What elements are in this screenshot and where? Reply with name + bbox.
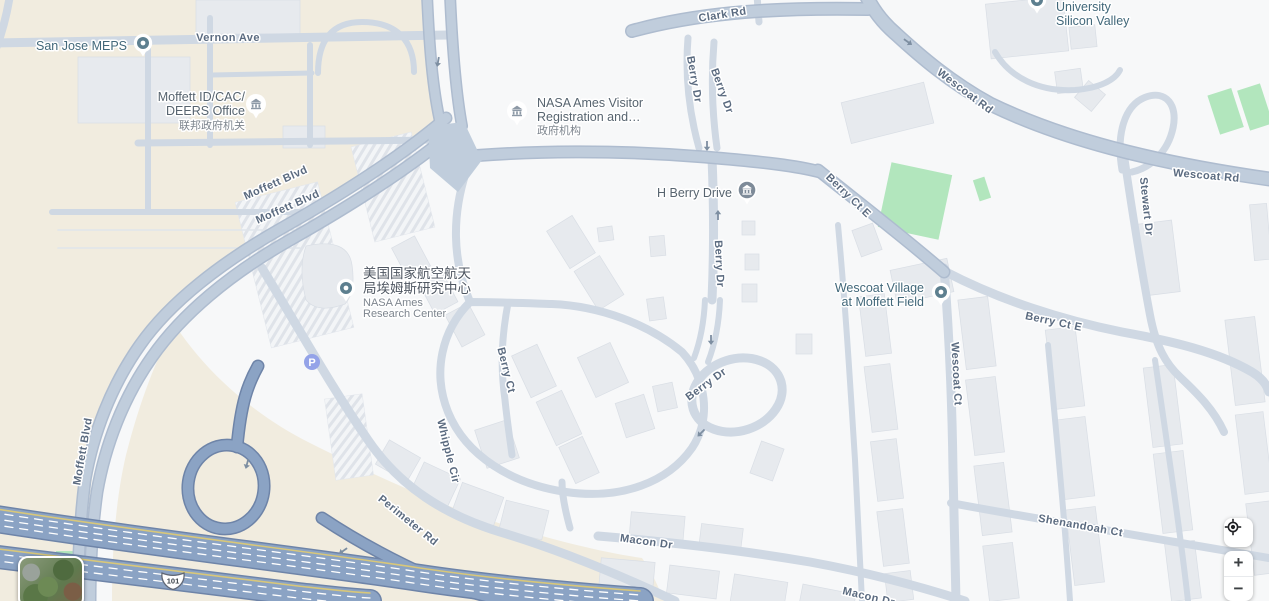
map-canvas[interactable]: Vernon Ave Moffett Blvd Moffett Blvd Mof… xyxy=(0,0,1269,601)
road-label-berry-dr-3: Berry Dr xyxy=(712,240,726,288)
poi-wescoat-village-line1: Wescoat Village xyxy=(835,281,924,295)
poi-nasa-ames-line1: 美国国家航空航天 xyxy=(363,265,471,281)
road-label-vernon-ave: Vernon Ave xyxy=(196,32,260,44)
poi-moffett-id-line2: DEERS Office xyxy=(166,104,245,118)
poi-university-line2: Silicon Valley xyxy=(1056,14,1130,28)
poi-wescoat-village-line2: at Moffett Field xyxy=(842,295,924,309)
poi-san-jose-meps-label: San Jose MEPS xyxy=(36,39,127,53)
zoom-out-button[interactable]: − xyxy=(1224,576,1253,601)
poi-nasa-visitor-line3: 政府机构 xyxy=(537,123,581,137)
parking-icon-label: P xyxy=(308,357,315,369)
my-location-button[interactable] xyxy=(1224,518,1253,547)
poi-moffett-id-line3: 联邦政府机关 xyxy=(179,118,245,132)
poi-nasa-visitor-line2: Registration and… xyxy=(537,110,641,124)
zoom-in-button[interactable]: + xyxy=(1224,551,1253,576)
highway-101-shield-label: 101 xyxy=(167,577,180,586)
map-app: Vernon Ave Moffett Blvd Moffett Blvd Mof… xyxy=(0,0,1269,601)
poi-nasa-visitor-line1: NASA Ames Visitor xyxy=(537,96,643,110)
parking-icon[interactable]: P xyxy=(304,354,320,370)
poi-moffett-id-line1: Moffett ID/CAC/ xyxy=(158,90,246,104)
poi-h-berry-drive-label: H Berry Drive xyxy=(657,186,732,200)
poi-university-line1: University xyxy=(1056,0,1112,14)
zoom-controls: + − xyxy=(1224,551,1253,601)
poi-nasa-ames-line2: 局埃姆斯研究中心 xyxy=(363,281,471,296)
satellite-layer-thumbnail[interactable] xyxy=(18,556,84,601)
poi-nasa-ames-line4: Research Center xyxy=(363,308,446,320)
my-location-icon xyxy=(1224,518,1242,536)
